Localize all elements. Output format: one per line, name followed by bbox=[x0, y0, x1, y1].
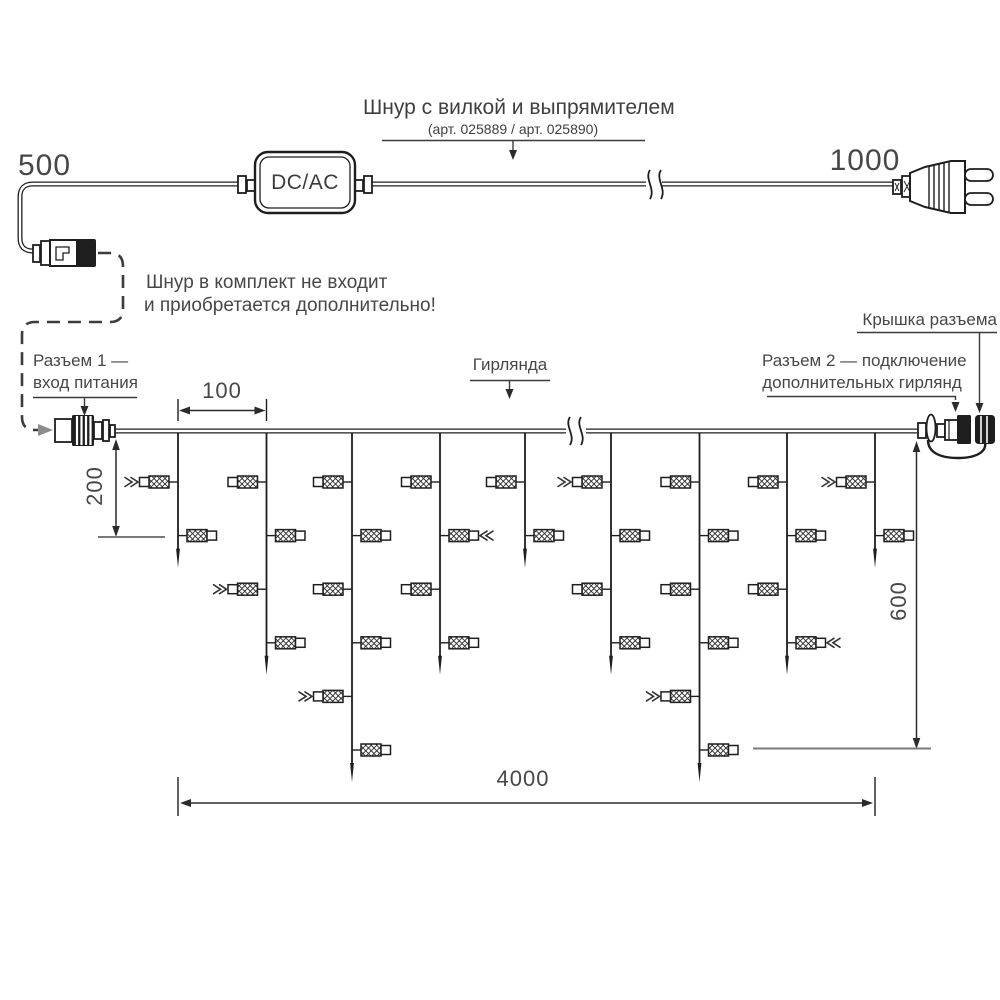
cord-subtitle: (арт. 025889 / арт. 025890) bbox=[363, 121, 663, 137]
connector1-label-line2: вход питания bbox=[33, 373, 138, 393]
lamp-icon bbox=[525, 530, 564, 542]
lamp-icon bbox=[314, 476, 353, 488]
lamp-icon bbox=[440, 530, 493, 542]
cord-connector bbox=[33, 239, 96, 267]
drop-tip-icon bbox=[698, 763, 702, 782]
connector-1 bbox=[55, 415, 115, 446]
lamp-icon bbox=[661, 583, 700, 595]
lamp-icon bbox=[402, 476, 441, 488]
lamp-icon bbox=[314, 583, 353, 595]
drop-tip-icon bbox=[523, 549, 527, 568]
cord-length-500: 500 bbox=[18, 149, 71, 184]
flash-arrow-icon bbox=[827, 638, 840, 647]
dashed-connection-path bbox=[22, 253, 123, 436]
wire-break-icon bbox=[568, 417, 571, 445]
flash-arrow-icon bbox=[480, 531, 493, 540]
lamp-icon bbox=[487, 476, 526, 488]
technical-diagram: 500 1000 Шнур с вилкой и выпрямителем (а… bbox=[0, 0, 1000, 1000]
note-line2: и приобретается дополнительно! bbox=[144, 295, 436, 317]
cord-title: Шнур с вилкой и выпрямителем bbox=[363, 96, 663, 120]
lamp-icon bbox=[267, 530, 306, 542]
lamp-icon bbox=[267, 637, 306, 649]
garland-label: Гирлянда bbox=[455, 355, 565, 375]
garland-drop bbox=[402, 431, 494, 675]
connector1-label-line1: Разъем 1 — bbox=[33, 351, 128, 371]
lamp-icon bbox=[875, 530, 914, 542]
lamp-icon bbox=[611, 637, 650, 649]
dim-100-value: 100 bbox=[182, 378, 262, 403]
drop-tip-icon bbox=[176, 549, 180, 568]
garland-drop bbox=[647, 431, 739, 782]
garland-drops bbox=[125, 431, 914, 782]
lamp-icon bbox=[700, 530, 739, 542]
dim-200-value: 200 bbox=[82, 466, 107, 506]
lamp-icon bbox=[700, 744, 739, 756]
lamp-icon bbox=[214, 583, 267, 595]
lamp-icon bbox=[299, 690, 352, 702]
flash-arrow-icon bbox=[214, 585, 227, 594]
drop-tip-icon bbox=[785, 656, 789, 675]
drop-tip-icon bbox=[265, 656, 269, 675]
lamp-icon bbox=[558, 476, 611, 488]
garland-drop bbox=[214, 431, 306, 675]
garland-drop bbox=[125, 431, 217, 568]
lamp-icon bbox=[787, 530, 826, 542]
drop-tip-icon bbox=[609, 656, 613, 675]
connector2-label-line2: дополнительных гирлянд bbox=[762, 373, 962, 393]
flash-arrow-icon bbox=[125, 478, 138, 487]
drop-tip-icon bbox=[873, 549, 877, 568]
lamp-icon bbox=[402, 583, 441, 595]
gray-arrowhead-icon bbox=[38, 424, 53, 436]
cord-length-1000: 1000 bbox=[815, 144, 915, 179]
flash-arrow-icon bbox=[299, 692, 312, 701]
garland-drop bbox=[822, 431, 914, 568]
power-cord-wire bbox=[20, 170, 895, 251]
dim-4000-value: 4000 bbox=[463, 766, 583, 791]
dim-600-value: 600 bbox=[886, 581, 911, 621]
drop-tip-icon bbox=[438, 656, 442, 675]
lamp-icon bbox=[352, 744, 391, 756]
lamp-icon bbox=[647, 690, 700, 702]
lamp-icon bbox=[125, 476, 178, 488]
connector2-label-line1: Разъем 2 — подключение bbox=[762, 351, 962, 371]
garland-drop bbox=[558, 431, 650, 675]
note-line1: Шнур в комплект не входит bbox=[146, 272, 387, 294]
lamp-icon bbox=[749, 583, 788, 595]
lamp-icon bbox=[749, 476, 788, 488]
adapter-label: DC/AC bbox=[271, 171, 339, 195]
garland-wire bbox=[114, 417, 918, 445]
lamp-icon bbox=[661, 476, 700, 488]
wire-break-icon bbox=[648, 170, 651, 199]
drop-tip-icon bbox=[350, 763, 354, 782]
cap-label: Крышка разъема bbox=[855, 310, 997, 330]
lamp-icon bbox=[228, 476, 267, 488]
lamp-icon bbox=[700, 637, 739, 649]
garland-drop bbox=[749, 431, 841, 675]
garland-drop bbox=[299, 431, 391, 782]
lamp-icon bbox=[352, 637, 391, 649]
garland-drop bbox=[487, 431, 564, 568]
lamp-icon bbox=[178, 530, 217, 542]
lamp-icon bbox=[611, 530, 650, 542]
connector-cap bbox=[975, 415, 995, 444]
lamp-icon bbox=[352, 530, 391, 542]
lamp-icon bbox=[787, 637, 840, 649]
lamp-icon bbox=[440, 637, 479, 649]
lamp-icon bbox=[573, 583, 612, 595]
lamp-icon bbox=[822, 476, 875, 488]
flash-arrow-icon bbox=[822, 478, 835, 487]
wire-break-icon bbox=[579, 417, 582, 445]
flash-arrow-icon bbox=[558, 478, 571, 487]
flash-arrow-icon bbox=[647, 692, 660, 701]
